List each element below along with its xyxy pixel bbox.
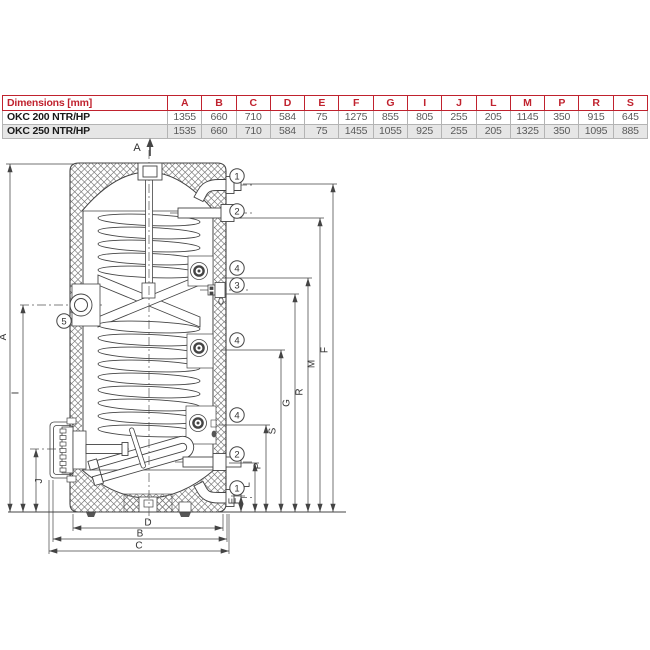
dim-label-s: S [268,427,279,434]
section-arrow: A [133,138,153,156]
up-arrow-icon [147,138,154,147]
callout-port-1-top: 1 [230,169,244,183]
sensor-wells [186,256,216,444]
dim-label-c: C [135,541,142,552]
dim-label-a: A [0,333,9,340]
svg-text:5: 5 [61,317,66,328]
callout-port-1-bottom: 1 [230,481,244,495]
svg-text:3: 3 [234,281,239,292]
svg-text:1: 1 [234,484,239,495]
port-5 [70,284,100,326]
top-fitting [138,163,162,180]
dim-label-r: R [295,388,306,395]
callout-sensor-4-upper: 4 [230,261,244,275]
dim-label-j: J [34,479,45,484]
section-arrow-label: A [133,142,141,154]
svg-text:4: 4 [234,411,239,422]
callout-port-3: 3 [230,278,244,292]
svg-text:2: 2 [234,207,239,218]
dim-label-i: I [11,392,22,395]
callout-sensor-4-middle: 4 [230,333,244,347]
svg-text:2: 2 [234,450,239,461]
svg-text:4: 4 [234,264,239,275]
dim-label-e: E [228,497,239,504]
svg-text:1: 1 [234,172,239,183]
dim-label-b: B [137,529,144,540]
callout-sensor-4-lower: 4 [230,408,244,422]
callout-port-2-upper: 2 [230,204,244,218]
dim-label-p: P [253,462,264,469]
dim-label-d: D [144,518,151,529]
dim-label-g: G [282,399,293,407]
callout-port-5: 5 [57,314,71,328]
technical-drawing: E L P S G R M F A I J D B C A 1 2 4 [0,0,650,650]
dim-label-m: M [307,360,318,368]
dim-label-f: F [320,347,331,353]
svg-text:4: 4 [234,336,239,347]
callout-port-2-lower: 2 [230,447,244,461]
